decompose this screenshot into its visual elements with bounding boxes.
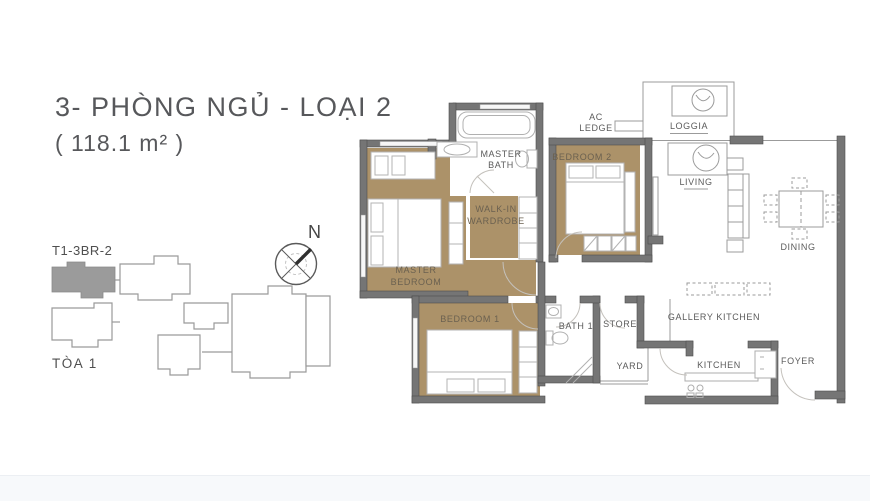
room-label-gallery-kitchen: GALLERY KITCHEN bbox=[668, 312, 760, 322]
room-label-bedroom-1: BEDROOM 1 bbox=[440, 314, 499, 324]
room-label-foyer: FOYER bbox=[781, 356, 815, 366]
room-label-bedroom-2: BEDROOM 2 bbox=[552, 152, 611, 162]
room-label-master-bedroom-2: BEDROOM bbox=[391, 277, 442, 287]
room-label-loggia: LOGGIA bbox=[670, 121, 708, 131]
room-label-master-bath: MASTER bbox=[480, 149, 521, 159]
room-label-dining: DINING bbox=[780, 242, 815, 252]
room-label-walk-in-2: WARDROBE bbox=[467, 216, 524, 226]
footer-band bbox=[0, 475, 870, 501]
room-label-yard: YARD bbox=[617, 361, 644, 371]
room-label-living: LIVING bbox=[679, 177, 712, 187]
living-dining-furniture bbox=[653, 89, 839, 295]
floorplan-drawing bbox=[0, 0, 870, 501]
floorplan-page: 3- PHÒNG NGỦ - LOẠI 2 ( 118.1 m² ) T1-3B… bbox=[0, 0, 870, 501]
room-label-bath-1: BATH 1 bbox=[559, 321, 593, 331]
room-label-ac-ledge: AC bbox=[589, 112, 603, 122]
room-label-store: STORE bbox=[603, 319, 637, 329]
room-label-walk-in: WALK-IN bbox=[475, 204, 516, 214]
room-label-master-bedroom: MASTER bbox=[395, 265, 436, 275]
room-label-kitchen: KITCHEN bbox=[697, 360, 741, 370]
room-label-ac-ledge-2: LEDGE bbox=[579, 123, 613, 133]
room-label-master-bath-2: BATH bbox=[488, 160, 514, 170]
kitchen-fixtures bbox=[685, 351, 776, 398]
